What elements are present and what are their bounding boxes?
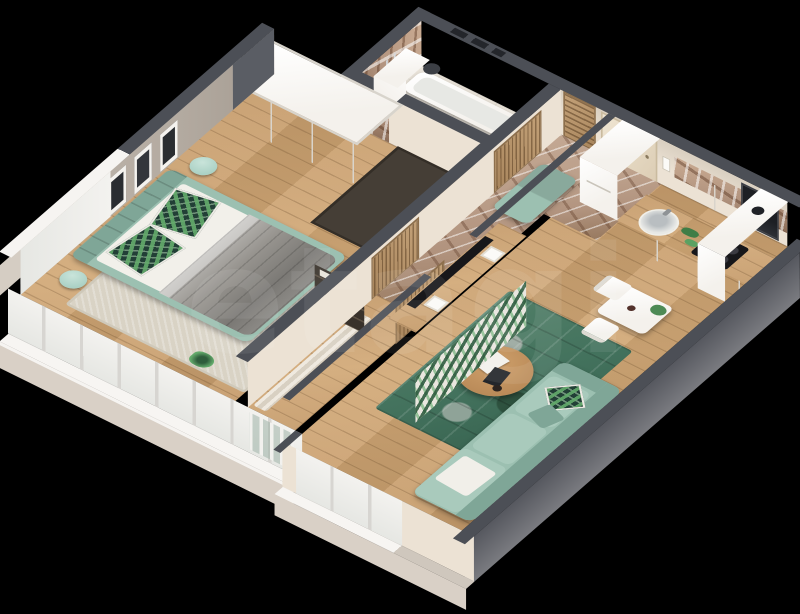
fridge-handle	[586, 180, 610, 194]
watermark: etagi	[185, 215, 645, 387]
floorplan-render: etagi	[0, 0, 800, 614]
intercom	[662, 156, 670, 173]
north-wall-vents	[450, 28, 506, 58]
